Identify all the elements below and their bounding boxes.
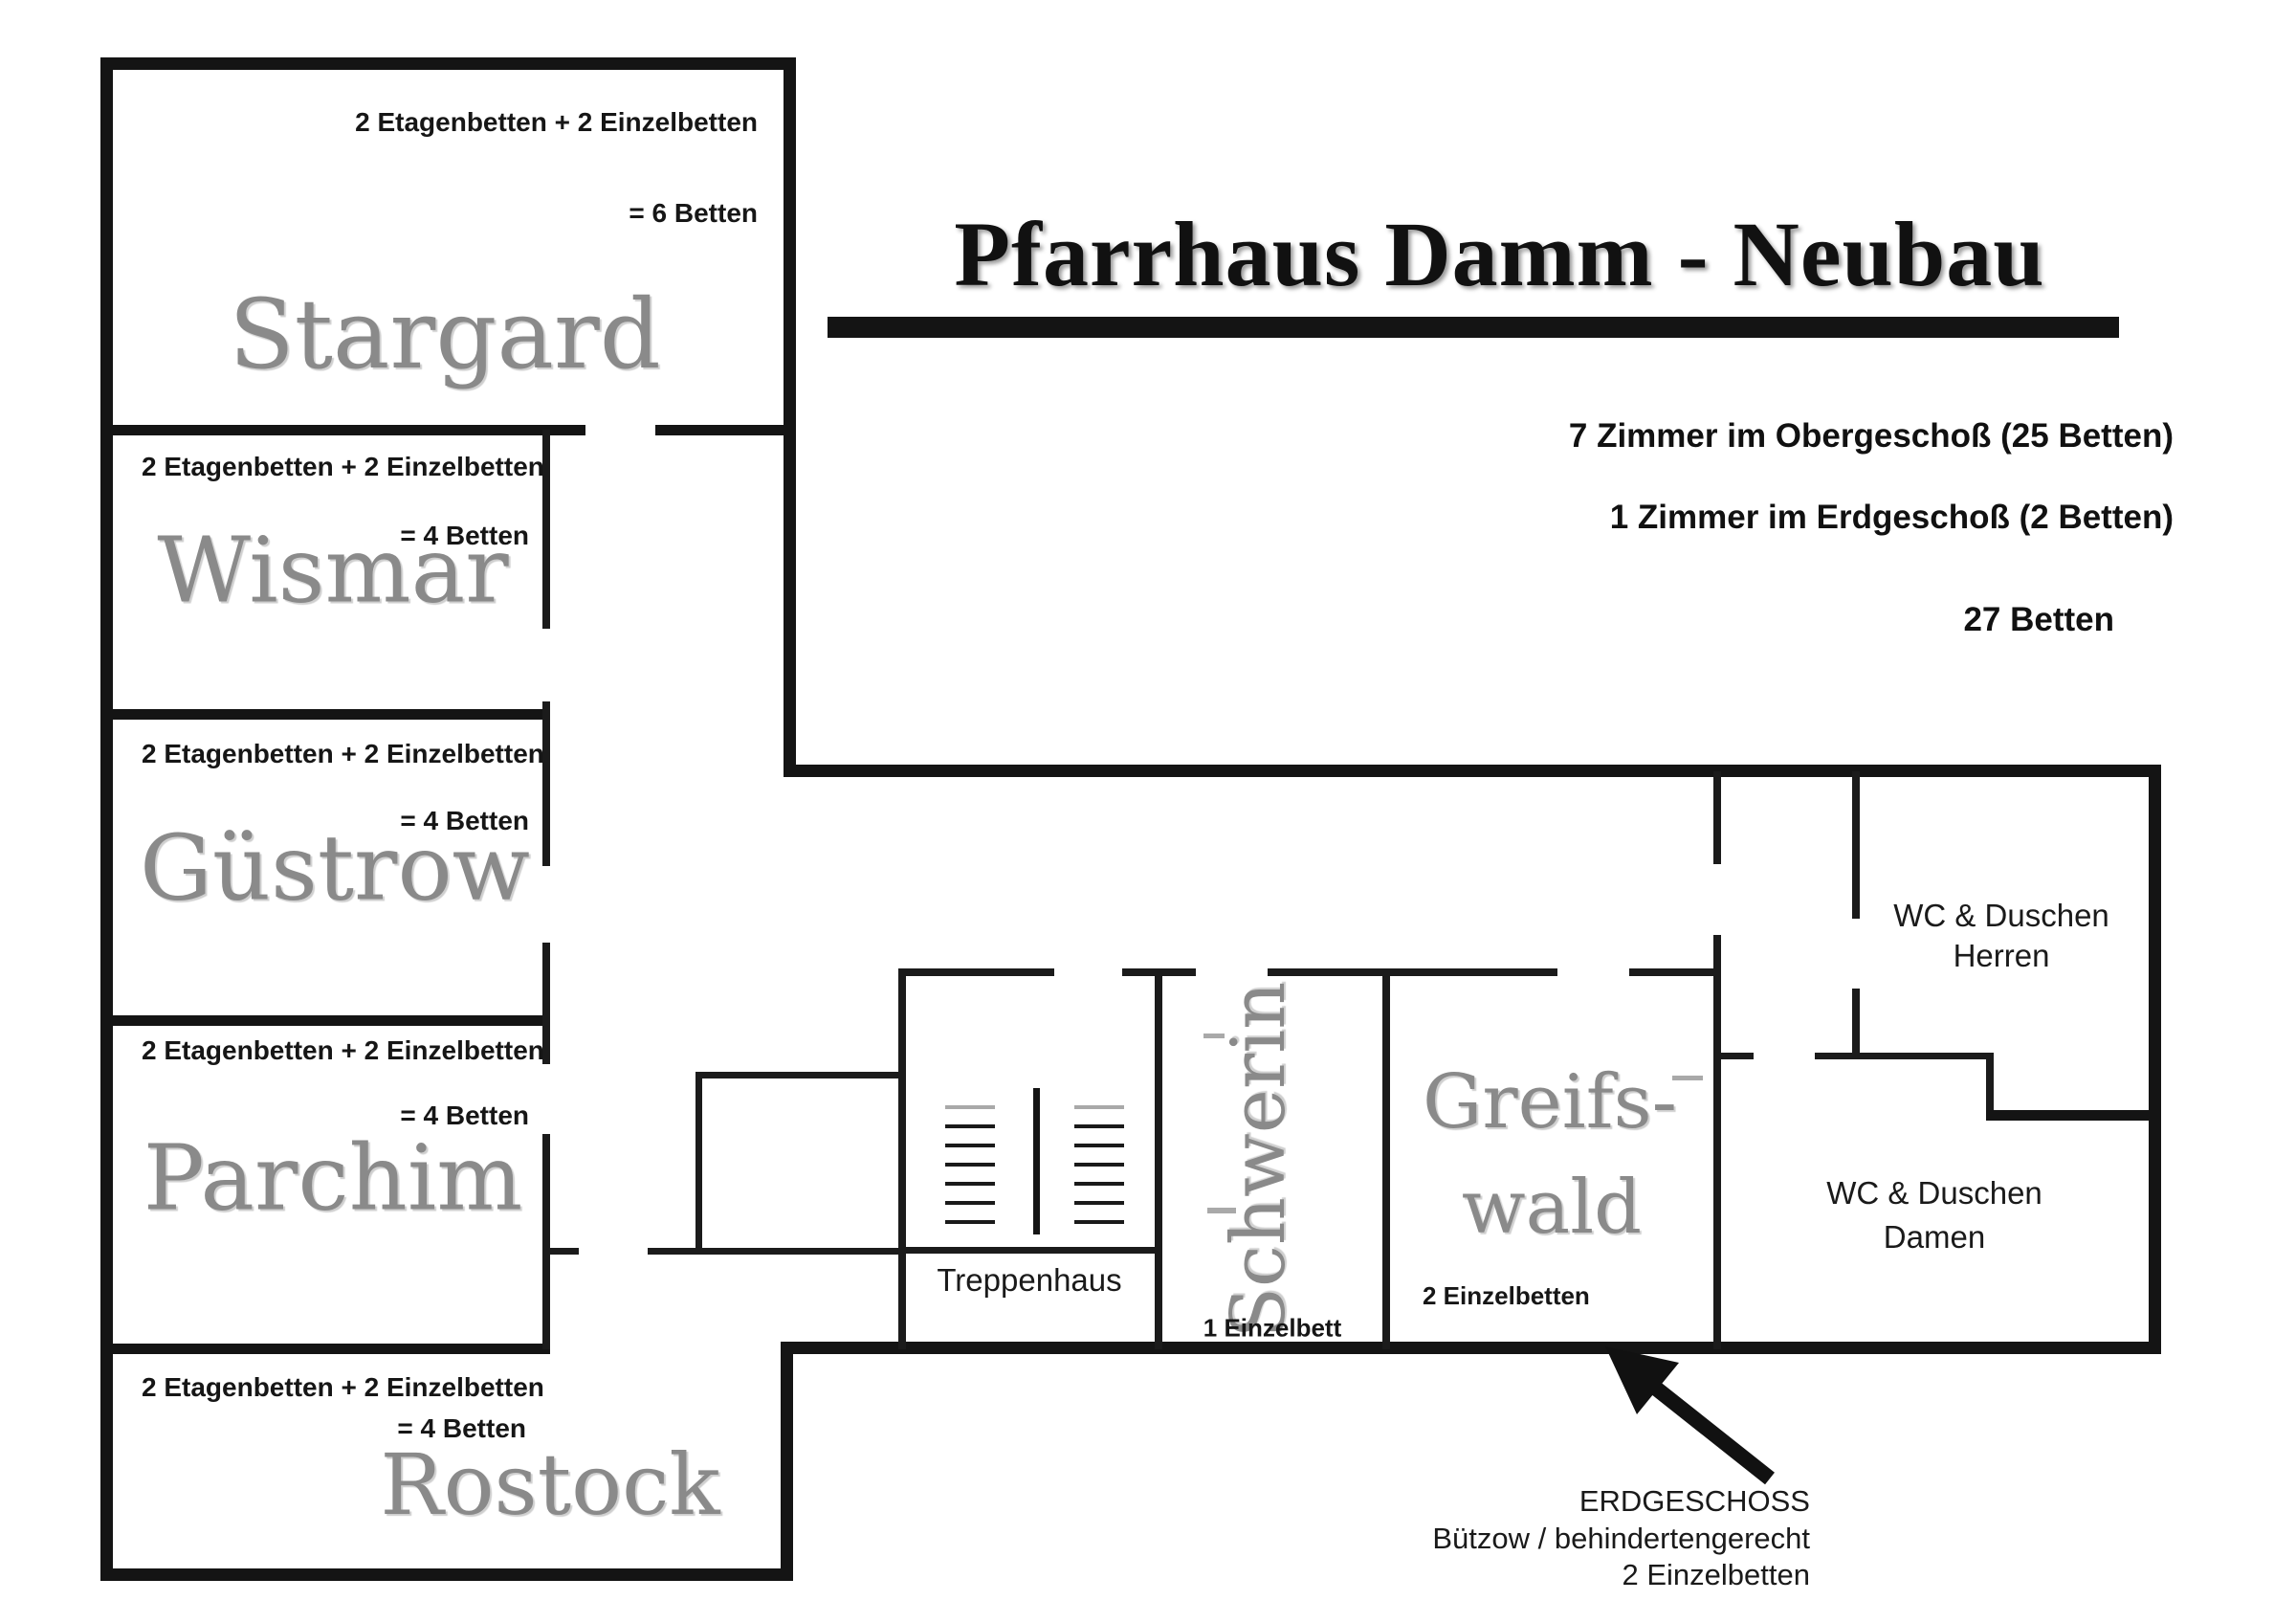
room-label-treppenhaus: Treppenhaus xyxy=(937,1262,1121,1299)
arrow-to-greifswald xyxy=(1550,1335,1799,1498)
wall-alcove-left xyxy=(695,1072,702,1255)
wc-damen-line2: Damen xyxy=(1884,1219,1985,1256)
summary-obergeschoss: 7 Zimmer im Obergeschoß (25 Betten) xyxy=(1148,417,2174,456)
annotation-line3: 2 Einzelbetten xyxy=(1045,1558,1810,1592)
wall-treppenhaus-left xyxy=(898,968,906,1349)
wall-stargard-right xyxy=(784,57,796,777)
title-underline xyxy=(828,317,2119,338)
wall-corridor-south xyxy=(648,1248,902,1255)
wall-wc-herren-left-2 xyxy=(1852,989,1860,1059)
wall-schwerin-greifswald xyxy=(1382,968,1390,1349)
wall-guestrow-parchim xyxy=(100,1015,550,1026)
wall-leftcol-right-4 xyxy=(542,1134,550,1349)
wall-right-outer xyxy=(2149,765,2161,1354)
stair-tread-gray-right xyxy=(1074,1105,1124,1109)
wall-wc-step-vert xyxy=(1986,1053,1994,1117)
stair-tread-gray-left xyxy=(945,1105,995,1109)
stair-treads-left xyxy=(945,1124,995,1224)
wall-schwerin-top xyxy=(1268,968,1389,976)
rostock-beds: 2 Etagenbetten + 2 Einzelbetten xyxy=(142,1372,544,1403)
room-label-rostock: Rostock xyxy=(380,1443,719,1527)
wall-greifswald-right-2 xyxy=(1713,935,1721,1349)
wismar-beds: 2 Etagenbetten + 2 Einzelbetten xyxy=(142,452,544,482)
stargard-total: = 6 Betten xyxy=(279,198,758,229)
wall-rostock-east xyxy=(781,1342,793,1581)
floor-plan: Pfarrhaus Damm - Neubau 7 Zimmer im Ober… xyxy=(0,0,2296,1623)
wall-greifswald-top-1 xyxy=(1389,968,1557,976)
stair-treads-right xyxy=(1074,1124,1124,1224)
wall-herren-damen xyxy=(1986,1110,2154,1121)
wall-long-corridor xyxy=(784,765,2161,777)
room-label-parchim: Parchim xyxy=(143,1134,523,1225)
wall-top-outer xyxy=(100,57,796,70)
stargard-beds: 2 Etagenbetten + 2 Einzelbetten xyxy=(279,107,758,138)
parchim-beds: 2 Etagenbetten + 2 Einzelbetten xyxy=(142,1035,544,1066)
wall-leftcol-right-2 xyxy=(542,701,550,866)
wc-herren-line1: WC & Duschen xyxy=(1893,898,2109,934)
wall-treppenhaus-schwerin xyxy=(1155,968,1162,1349)
wall-greifswald-right-1 xyxy=(1713,771,1721,864)
wall-greifswald-top-2 xyxy=(1629,968,1719,976)
wall-stargard-wismar-2 xyxy=(655,425,784,435)
wall-parchim-rostock xyxy=(100,1344,550,1354)
wc-damen-line1: WC & Duschen xyxy=(1826,1175,2042,1212)
summary-total: 27 Betten xyxy=(1148,601,2114,639)
room-label-guestrow: Güstrow xyxy=(140,824,530,915)
stair-divider xyxy=(1033,1088,1040,1234)
annotation-line2: Bützow / behindertengerecht xyxy=(1045,1522,1810,1556)
summary-erdgeschoss: 1 Zimmer im Erdgeschoß (2 Betten) xyxy=(1148,499,2174,537)
wc-herren-line2: Herren xyxy=(1954,938,2050,974)
wall-treppenhaus-top-1 xyxy=(898,968,1054,976)
page-title: Pfarrhaus Damm - Neubau xyxy=(832,201,2167,307)
room-label-greifswald-2: wald xyxy=(1462,1170,1642,1245)
wall-bottom-right-section xyxy=(786,1342,2161,1354)
room-label-stargard: Stargard xyxy=(229,287,661,383)
wall-wc-south-tick xyxy=(1717,1053,1754,1059)
room-label-schwerin: Schwerin xyxy=(1222,982,1296,1339)
wall-wismar-guestrow xyxy=(100,709,550,720)
schwerin-beds: 1 Einzelbett xyxy=(1203,1314,1341,1344)
wall-alcove-top xyxy=(698,1072,902,1078)
guestrow-beds: 2 Etagenbetten + 2 Einzelbetten xyxy=(142,739,544,769)
wall-stargard-wismar xyxy=(100,425,585,435)
room-label-greifswald-1: Greifs- xyxy=(1423,1065,1677,1140)
wall-rostock-bottom xyxy=(100,1568,793,1581)
wall-corridor-south-tick xyxy=(550,1248,579,1255)
wall-wc-south xyxy=(1815,1053,1990,1059)
wall-wc-herren-left-1 xyxy=(1852,771,1860,919)
greifswald-beds: 2 Einzelbetten xyxy=(1423,1281,1590,1311)
wall-stairs-bottom xyxy=(902,1247,1159,1254)
room-label-wismar: Wismar xyxy=(157,526,508,617)
